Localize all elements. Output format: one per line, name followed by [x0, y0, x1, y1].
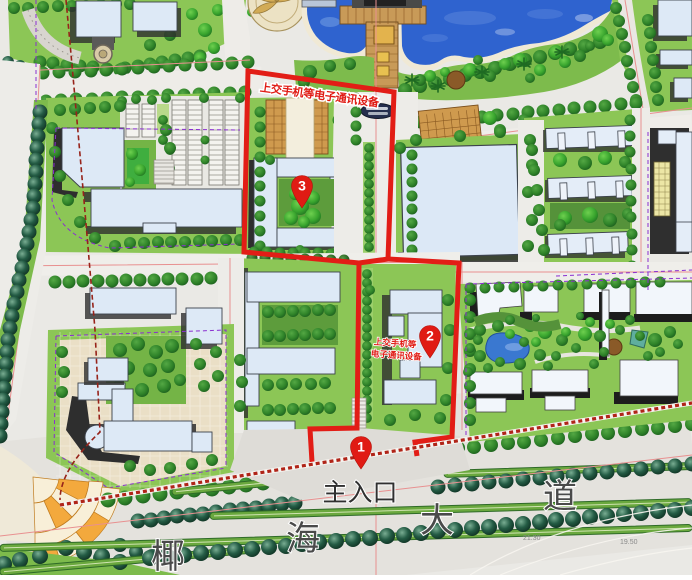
svg-text:1: 1 [357, 439, 365, 455]
svg-text:19.50: 19.50 [620, 539, 638, 546]
svg-text:海: 海 [286, 520, 320, 558]
svg-text:椰: 椰 [151, 538, 185, 575]
svg-text:大: 大 [420, 502, 454, 540]
svg-text:21.30: 21.30 [523, 535, 541, 542]
svg-text:2: 2 [426, 328, 434, 344]
svg-text:道: 道 [543, 478, 577, 516]
svg-text:主入口: 主入口 [322, 479, 397, 507]
svg-text:3: 3 [298, 178, 306, 194]
